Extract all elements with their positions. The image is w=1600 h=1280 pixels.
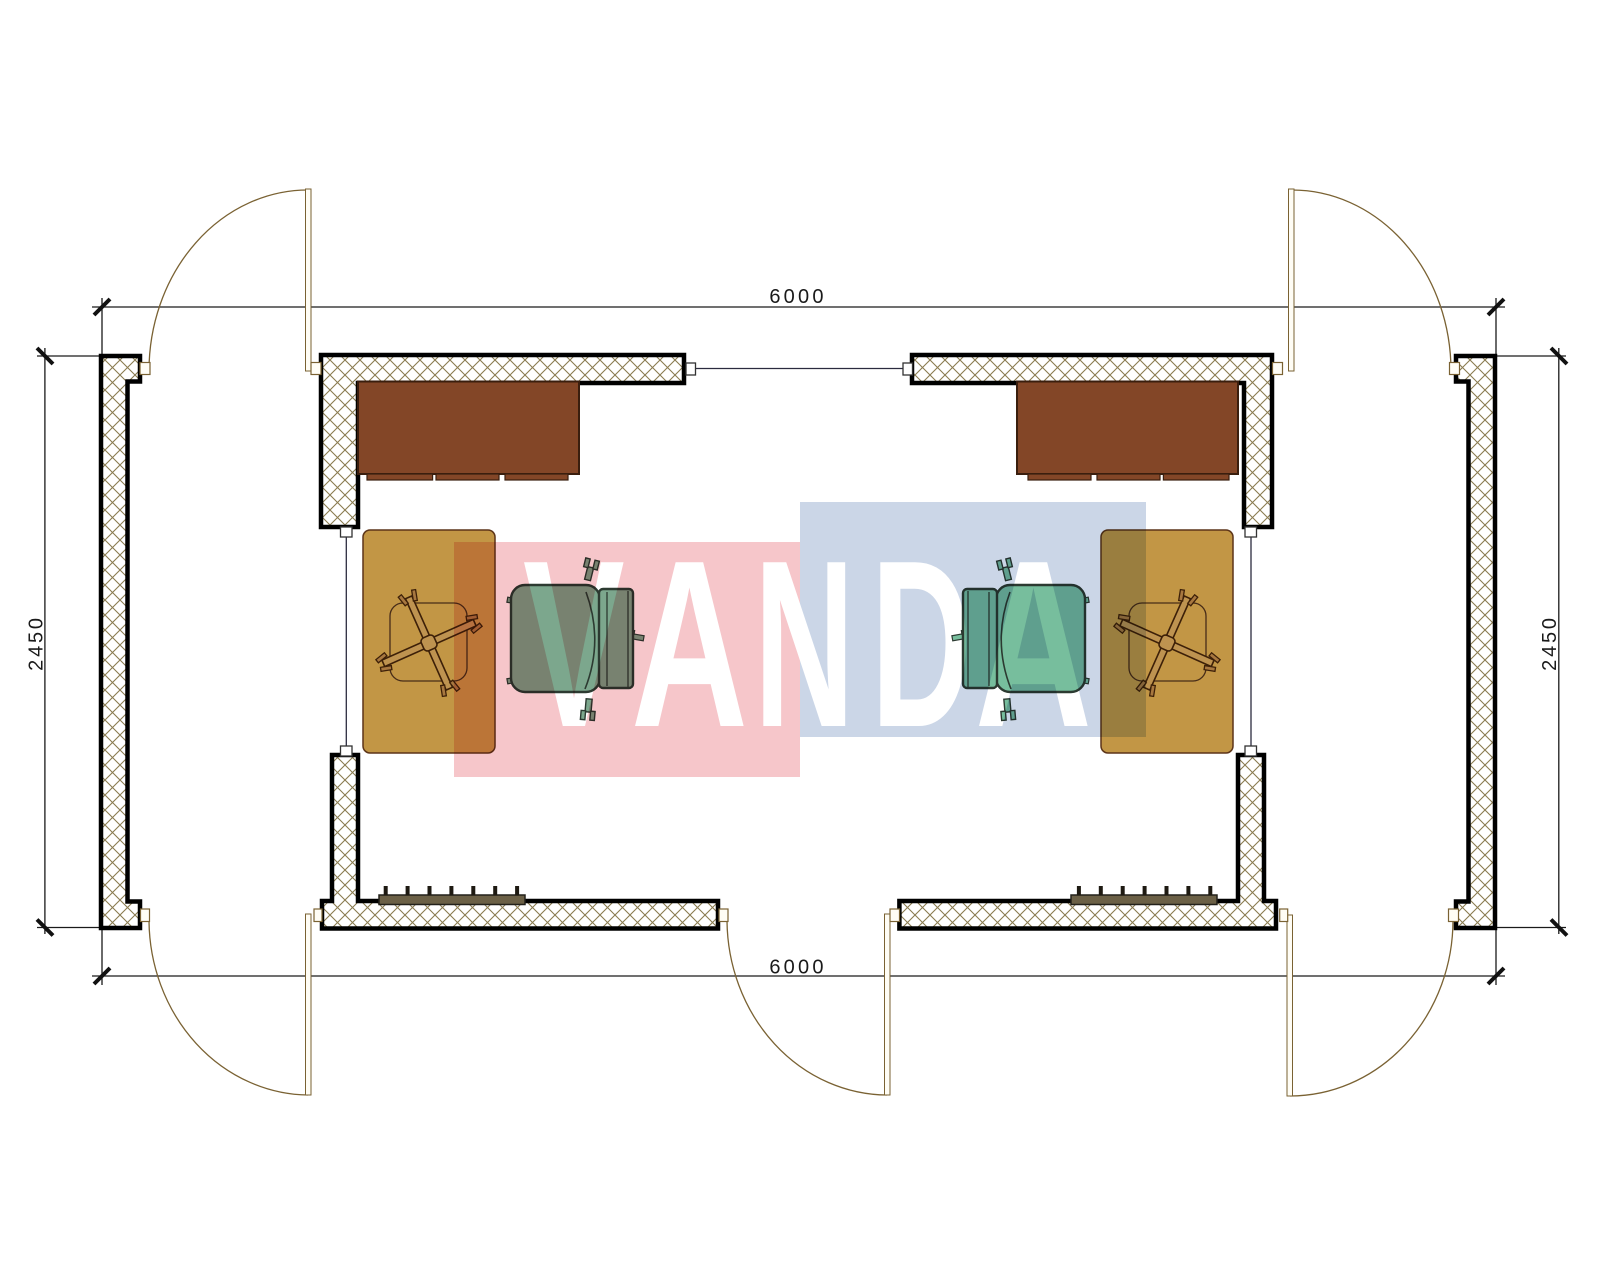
svg-text:2450: 2450 bbox=[26, 615, 48, 671]
svg-text:2450: 2450 bbox=[1539, 615, 1561, 671]
svg-text:6000: 6000 bbox=[769, 286, 826, 308]
svg-text:6000: 6000 bbox=[769, 957, 826, 979]
